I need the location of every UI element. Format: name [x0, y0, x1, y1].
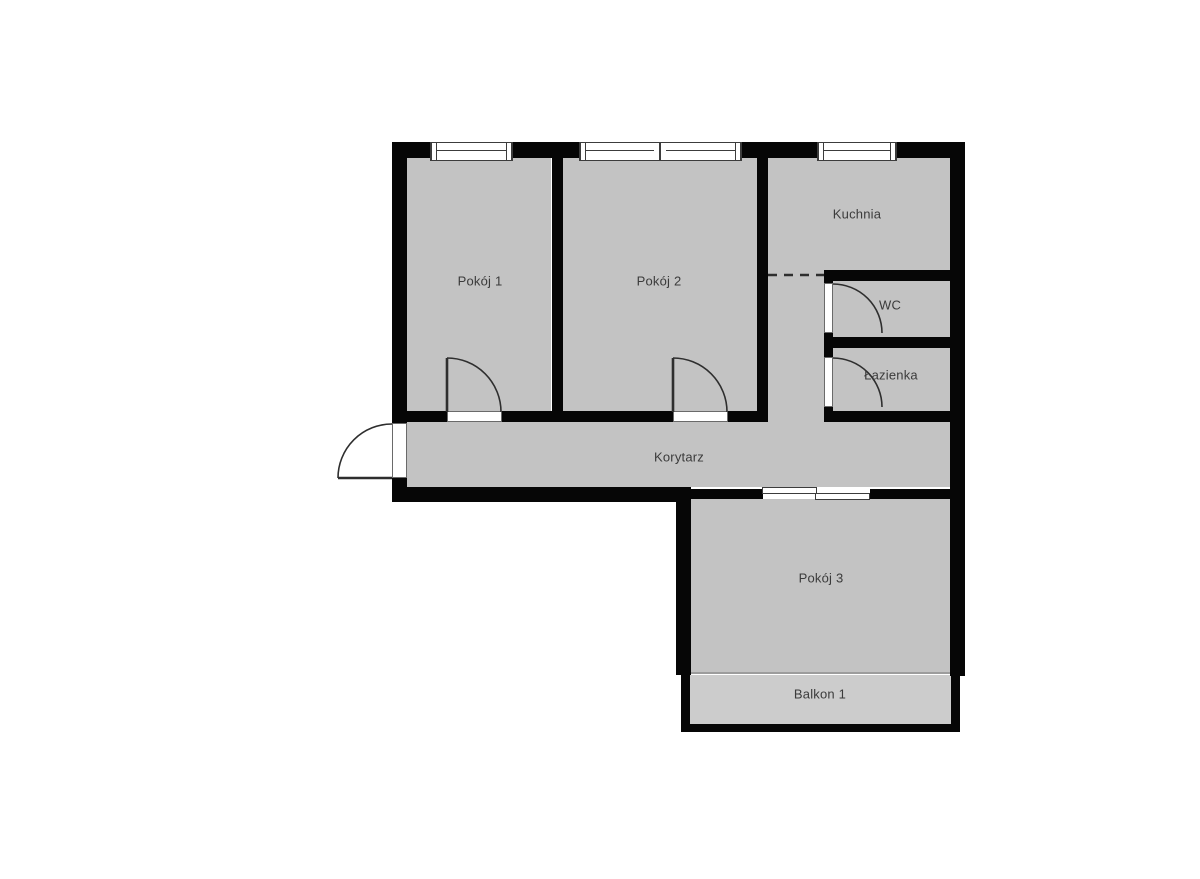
window-jamb [735, 143, 741, 160]
window-pokoj-1 [430, 142, 513, 161]
wall-corridor-top-b [502, 411, 673, 422]
room-floor-pokoj-3 [691, 499, 950, 672]
room-label-lazienka: Łazienka [864, 368, 918, 383]
wall-pokoj1-pokoj2 [552, 158, 563, 411]
window-jamb [890, 143, 896, 160]
window-pane-line [436, 150, 507, 151]
door-sill-entry [392, 423, 407, 478]
room-label-pokoj-1: Pokój 1 [458, 274, 503, 289]
room-label-balkon-1: Balkon 1 [794, 687, 846, 702]
floor-plan: Pokój 1 Pokój 2 Kuchnia WC Łazienka Kory… [0, 0, 1200, 879]
wall-pokoj3-top-b [870, 489, 950, 499]
window-pane-line [823, 150, 891, 151]
wall-pokoj3-top-a [691, 489, 763, 499]
wall-wc-lazienka [824, 337, 950, 348]
room-label-pokoj-2: Pokój 2 [637, 274, 682, 289]
window-kuchnia [817, 142, 897, 161]
wall-corridor-top-c [728, 411, 768, 422]
wall-lazienka-bottom [824, 411, 950, 422]
wall-corridor-top-a [407, 411, 447, 422]
window-pokoj-2-right [660, 142, 742, 161]
window-pane-line [666, 150, 736, 151]
door-sill-pokoj-1 [447, 411, 502, 422]
room-label-kuchnia: Kuchnia [833, 207, 881, 222]
window-jamb [818, 143, 824, 160]
door-leaf-wc [824, 283, 833, 333]
window-jamb [580, 143, 586, 160]
room-label-korytarz: Korytarz [654, 450, 704, 465]
wall-pokoj3-left [676, 489, 691, 675]
sliding-door-panel-right [815, 493, 870, 500]
door-leaf-lazienka [824, 357, 833, 407]
window-jamb [431, 143, 437, 160]
wall-right [950, 142, 965, 676]
sliding-door-panel-left [762, 487, 817, 494]
room-label-pokoj-3: Pokój 3 [799, 571, 844, 586]
door-arc-entry [338, 424, 392, 478]
window-pane-line [585, 150, 654, 151]
balcony-threshold [691, 672, 950, 674]
wall-kuchnia-bottom [824, 270, 950, 281]
window-jamb [506, 143, 512, 160]
wall-corridor-bottom [392, 487, 691, 502]
door-sill-pokoj-2 [673, 411, 728, 422]
window-pokoj-2-left [579, 142, 660, 161]
wall-pokoj2-kuchnia [757, 158, 768, 422]
room-label-wc: WC [879, 298, 901, 313]
wall-balkon-bottom [681, 724, 960, 732]
